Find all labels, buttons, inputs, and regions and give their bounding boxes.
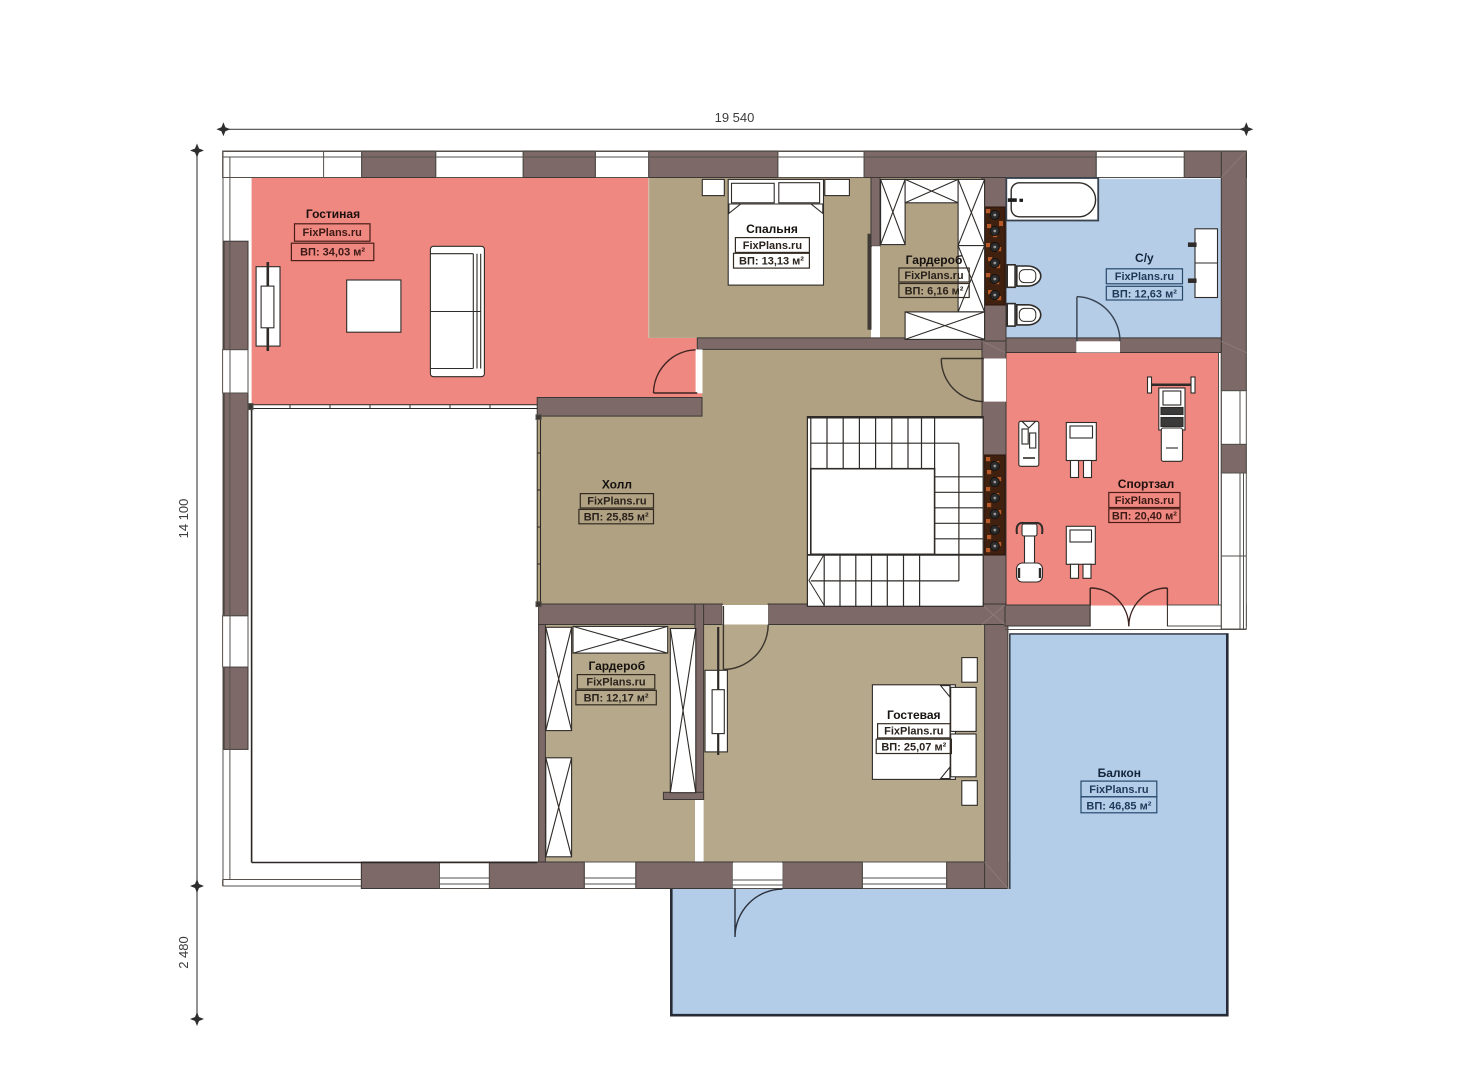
svg-text:FixPlans.ru: FixPlans.ru — [587, 496, 646, 508]
svg-text:ВП: 12,63 м²: ВП: 12,63 м² — [1112, 288, 1177, 300]
svg-text:Гостиная: Гостиная — [306, 207, 360, 221]
svg-text:Гардероб: Гардероб — [588, 659, 645, 673]
svg-text:FixPlans.ru: FixPlans.ru — [1089, 784, 1148, 796]
svg-text:Холл: Холл — [602, 478, 632, 492]
svg-text:С/у: С/у — [1135, 251, 1154, 265]
svg-text:Балкон: Балкон — [1098, 766, 1141, 780]
svg-text:FixPlans.ru: FixPlans.ru — [904, 270, 963, 282]
svg-text:14 100: 14 100 — [176, 499, 191, 539]
svg-text:ВП: 34,03 м²: ВП: 34,03 м² — [300, 247, 365, 259]
svg-text:ВП: 25,85 м²: ВП: 25,85 м² — [584, 512, 649, 524]
svg-text:FixPlans.ru: FixPlans.ru — [1115, 495, 1174, 507]
svg-text:Спальня: Спальня — [746, 222, 798, 236]
svg-text:FixPlans.ru: FixPlans.ru — [743, 240, 802, 252]
svg-text:19 540: 19 540 — [715, 110, 755, 125]
svg-text:FixPlans.ru: FixPlans.ru — [884, 726, 943, 738]
svg-text:FixPlans.ru: FixPlans.ru — [586, 677, 645, 689]
svg-text:ВП: 6,16 м²: ВП: 6,16 м² — [905, 286, 964, 298]
svg-text:Спортзал: Спортзал — [1118, 477, 1174, 491]
svg-text:ВП: 12,17 м²: ВП: 12,17 м² — [584, 693, 649, 705]
svg-text:FixPlans.ru: FixPlans.ru — [303, 227, 362, 239]
svg-text:ВП: 25,07 м²: ВП: 25,07 м² — [881, 742, 946, 754]
svg-text:ВП: 46,85 м²: ВП: 46,85 м² — [1086, 801, 1151, 813]
svg-text:ВП: 13,13 м²: ВП: 13,13 м² — [739, 256, 804, 268]
svg-text:ВП: 20,40 м²: ВП: 20,40 м² — [1112, 511, 1177, 523]
svg-text:FixPlans.ru: FixPlans.ru — [1115, 271, 1174, 283]
svg-text:2 480: 2 480 — [176, 936, 191, 969]
svg-text:Гардероб: Гардероб — [906, 253, 963, 267]
svg-text:Гостевая: Гостевая — [887, 708, 941, 722]
